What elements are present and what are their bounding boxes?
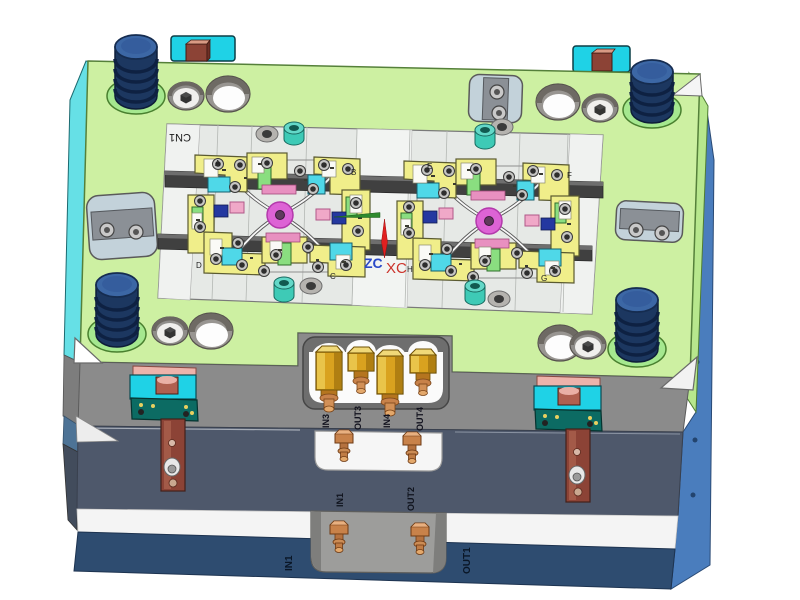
svg-text:D: D (196, 261, 202, 270)
svg-text:IN3: IN3 (321, 414, 331, 428)
svg-text:IN1: IN1 (284, 555, 295, 571)
svg-text:B: B (351, 168, 356, 177)
svg-text:CN1: CN1 (169, 131, 191, 143)
svg-text:F: F (567, 171, 572, 180)
svg-text:OUT4: OUT4 (415, 407, 425, 431)
svg-text:IN1: IN1 (335, 493, 345, 507)
svg-text:A: A (215, 159, 221, 168)
svg-text:ZC: ZC (364, 255, 383, 271)
svg-text:C: C (330, 272, 336, 281)
svg-text:G: G (541, 274, 547, 283)
svg-text:E: E (427, 162, 432, 171)
svg-text:OUT2: OUT2 (406, 487, 416, 511)
svg-text:OUT1: OUT1 (462, 547, 473, 574)
svg-text:H: H (407, 265, 413, 274)
svg-text:OUT3: OUT3 (353, 406, 363, 430)
svg-text:XC: XC (386, 260, 407, 277)
svg-text:IN4: IN4 (382, 414, 392, 428)
